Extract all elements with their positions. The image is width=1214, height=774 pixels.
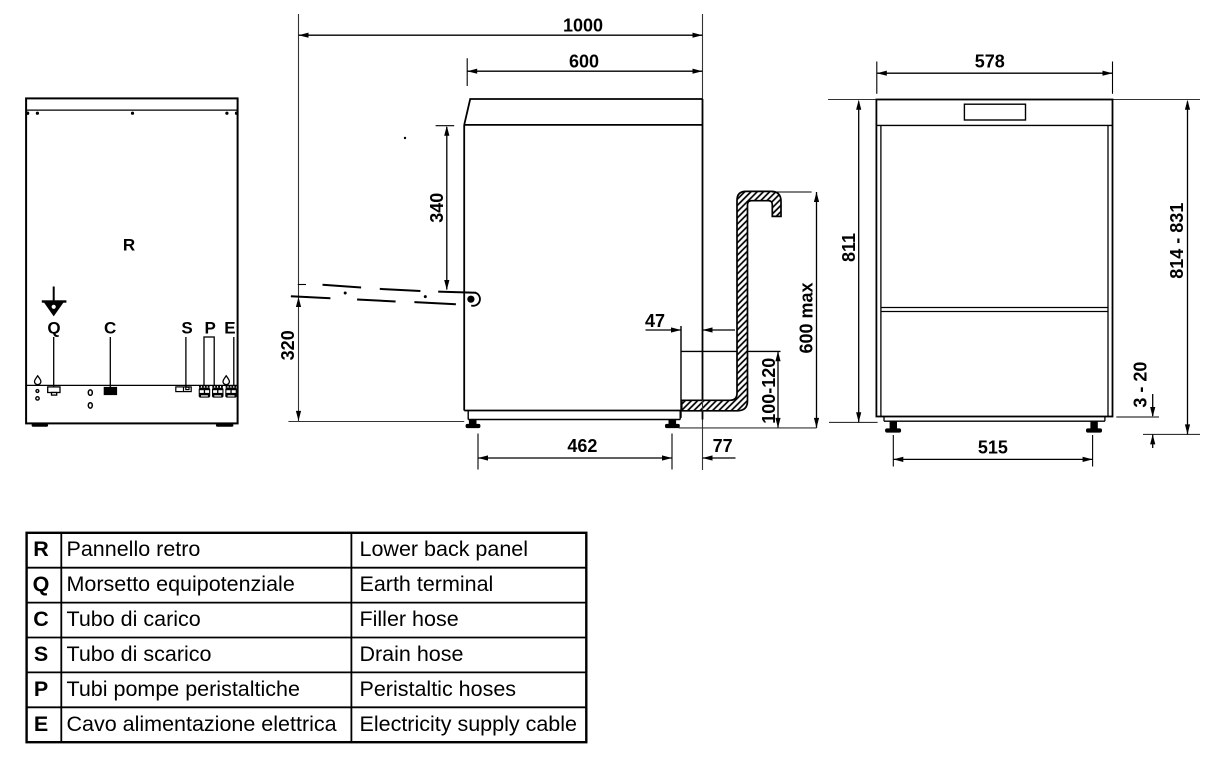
svg-text:S: S [181, 319, 192, 338]
svg-text:1000: 1000 [563, 16, 603, 36]
svg-text:Morsetto equipotenziale: Morsetto equipotenziale [67, 572, 295, 596]
svg-text:Lower back panel: Lower back panel [360, 537, 529, 561]
svg-text:R: R [33, 537, 49, 561]
svg-text:Tubi pompe peristaltiche: Tubi pompe peristaltiche [67, 677, 300, 701]
svg-text:Electricity supply cable: Electricity supply cable [360, 712, 577, 736]
svg-text:600 max: 600 max [797, 282, 817, 353]
svg-text:Peristaltic hoses: Peristaltic hoses [360, 677, 517, 701]
svg-text:Tubo di scarico: Tubo di scarico [67, 642, 212, 666]
svg-text:340: 340 [427, 193, 447, 223]
svg-text:515: 515 [978, 437, 1008, 457]
svg-text:Q: Q [47, 319, 60, 338]
svg-text:320: 320 [278, 330, 298, 360]
svg-text:C: C [104, 319, 116, 338]
svg-text:E: E [224, 319, 235, 338]
svg-text:Cavo alimentazione elettrica: Cavo alimentazione elettrica [67, 712, 337, 736]
svg-text:47: 47 [645, 311, 665, 331]
svg-text:811: 811 [839, 233, 859, 262]
svg-text:P: P [205, 319, 216, 338]
svg-text:814 - 831: 814 - 831 [1167, 203, 1187, 279]
svg-text:Tubo di carico: Tubo di carico [67, 607, 201, 631]
svg-text:600: 600 [569, 52, 599, 72]
svg-text:3 - 20: 3 - 20 [1131, 362, 1151, 408]
svg-text:P: P [34, 677, 48, 701]
svg-text:100-120: 100-120 [759, 358, 779, 424]
svg-text:Drain hose: Drain hose [360, 642, 464, 666]
svg-text:R: R [123, 236, 135, 255]
svg-text:S: S [34, 642, 48, 666]
svg-text:578: 578 [975, 52, 1005, 72]
svg-text:C: C [33, 607, 49, 631]
svg-text:Pannello retro: Pannello retro [67, 537, 201, 561]
svg-text:Earth terminal: Earth terminal [360, 572, 494, 596]
svg-text:Filler hose: Filler hose [360, 607, 459, 631]
svg-text:77: 77 [713, 436, 733, 456]
svg-text:462: 462 [567, 436, 597, 456]
svg-text:Q: Q [33, 572, 50, 596]
svg-text:E: E [34, 712, 48, 736]
